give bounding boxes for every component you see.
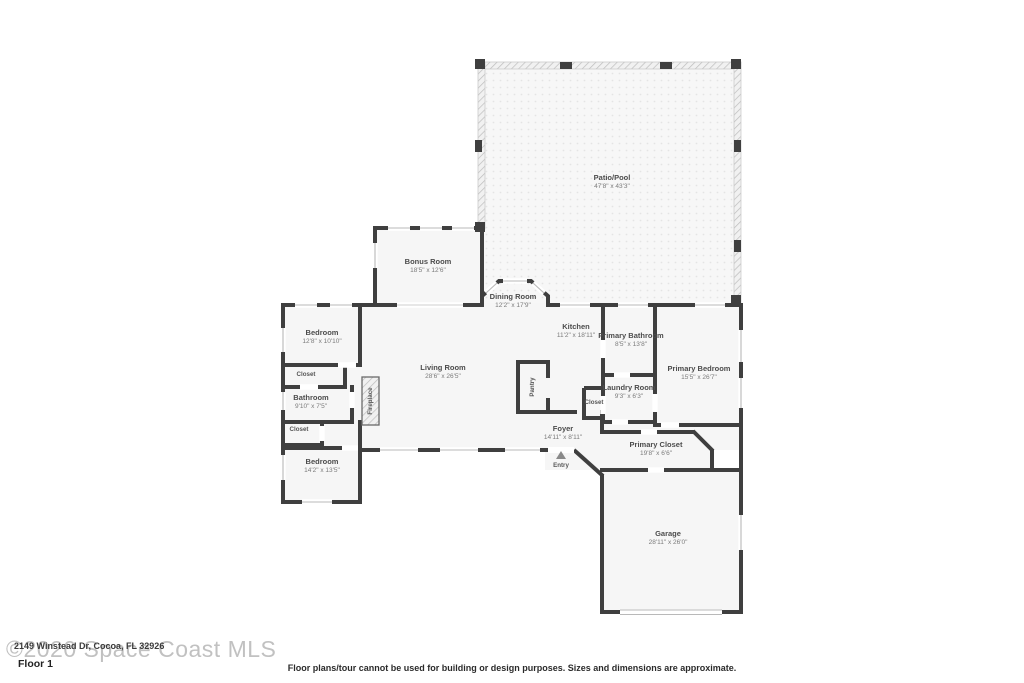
disclaimer-text: Floor plans/tour cannot be used for buil… [0,663,1024,673]
property-address: 2149 Winstead Dr, Cocoa, FL 32926 [14,641,164,651]
floorplan-canvas: Patio/Pool 47'8" x 43'3" Bonus Room 18'5… [0,0,1024,683]
floorplan-drawing [0,0,1024,683]
patio-area [475,59,741,305]
fireplace-box [362,377,379,425]
garage-door [620,610,722,615]
